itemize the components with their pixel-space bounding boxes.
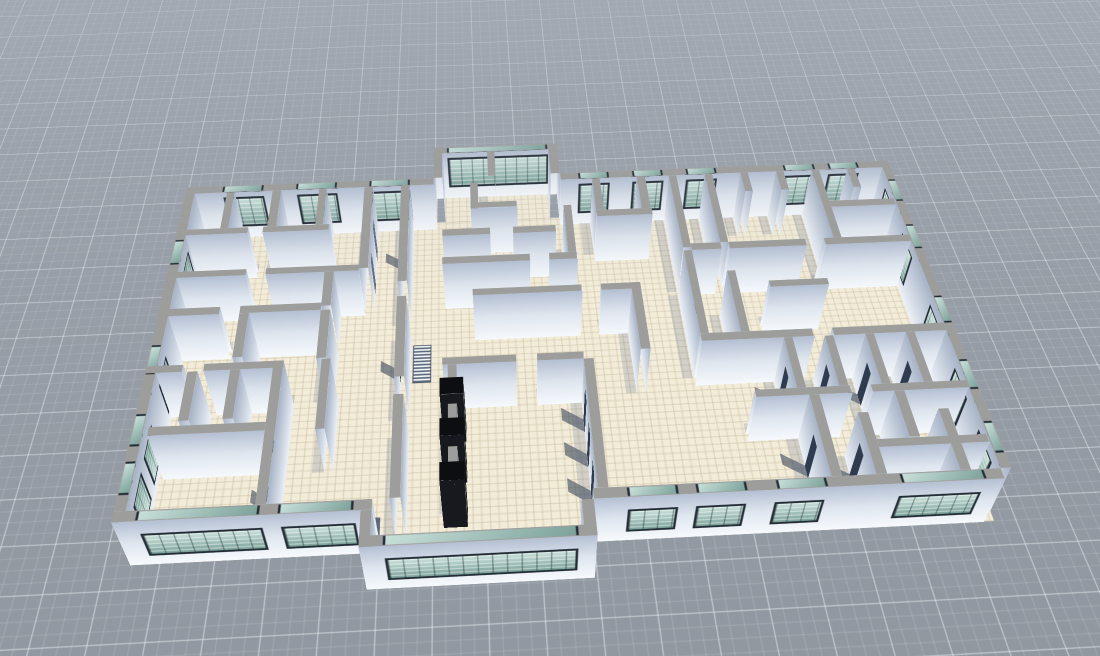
3d-viewport[interactable] <box>0 0 1100 656</box>
black-cube-top <box>440 417 465 436</box>
window-glass-top <box>627 485 679 495</box>
window-glass <box>769 499 824 523</box>
window-glass <box>691 503 745 527</box>
wall-face <box>595 214 653 262</box>
door-panel <box>373 218 378 261</box>
wall-face <box>472 291 582 341</box>
window-glass <box>140 527 269 555</box>
wall-cap <box>487 151 496 175</box>
window-glass <box>447 154 547 187</box>
window-glass-top <box>775 478 827 488</box>
staircase <box>412 345 431 383</box>
door-panel <box>371 251 376 295</box>
window-glass-top <box>695 482 747 492</box>
wall-face <box>537 359 584 406</box>
scene-camera <box>0 0 1100 656</box>
wall-face <box>815 241 911 290</box>
black-cube-face <box>439 479 468 528</box>
building-model <box>30 158 1100 656</box>
window-glass <box>889 491 980 517</box>
wall-cap <box>548 143 560 173</box>
wall-face <box>147 430 276 480</box>
black-cube-top <box>440 377 464 395</box>
black-cube-top <box>439 460 464 480</box>
window-glass <box>384 548 578 579</box>
window-glass <box>625 507 677 531</box>
window-glass <box>281 523 360 548</box>
wall-face <box>761 284 829 332</box>
